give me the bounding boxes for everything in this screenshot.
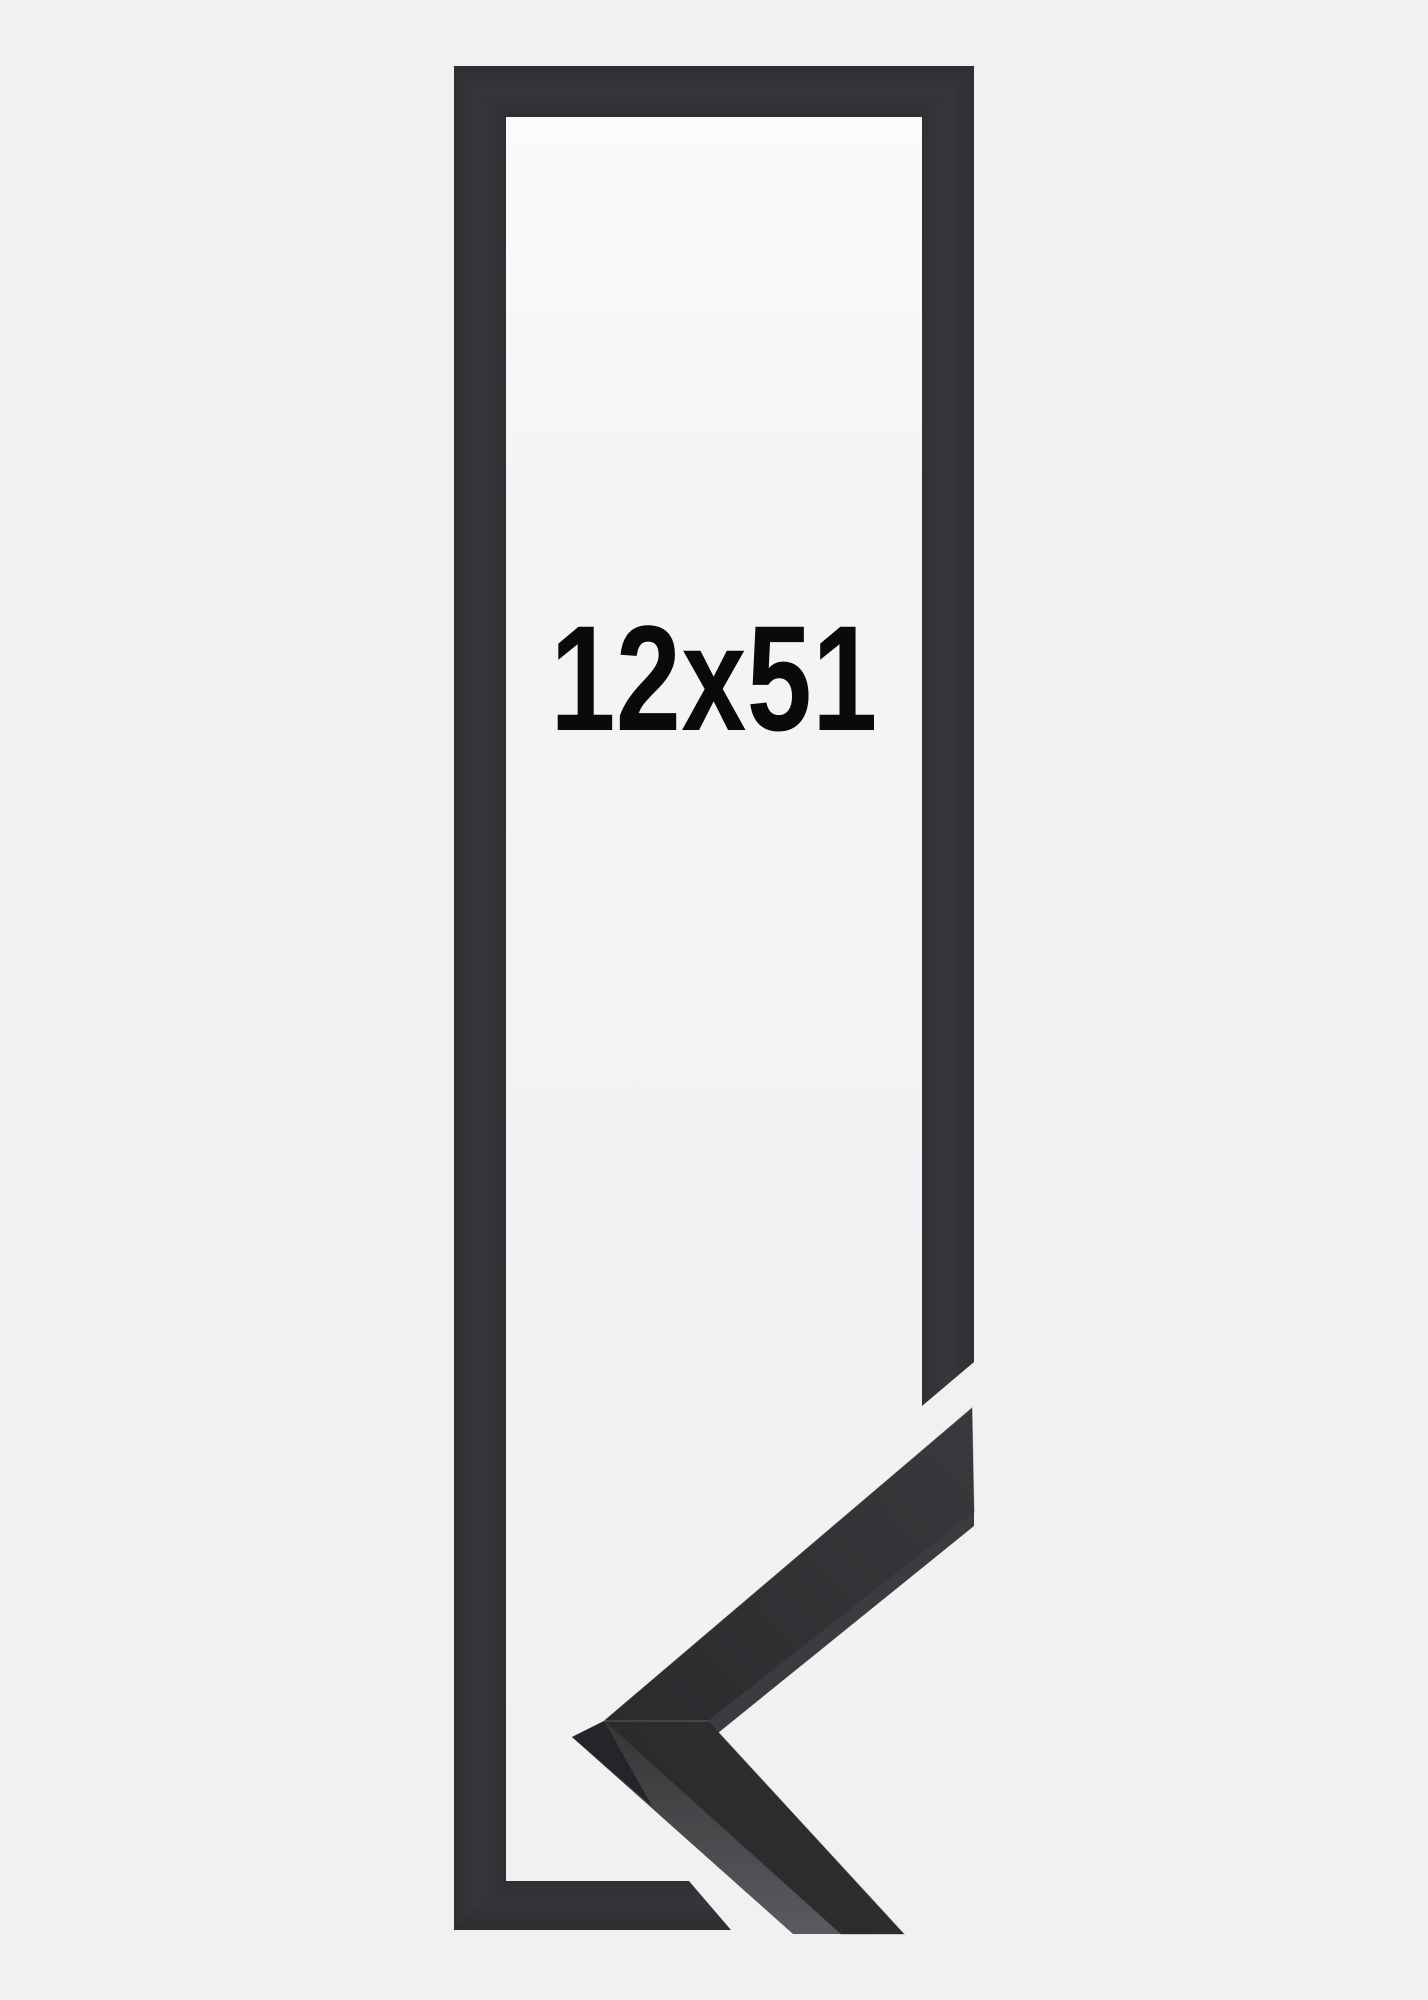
product-photo: 12x51 [0,0,1428,2000]
frame-left-rail [454,66,506,1930]
size-label: 12x51 [504,603,924,753]
picture-frame-illustration [0,0,1428,2000]
size-label-text: 12x51 [550,603,877,753]
frame-right-rail [922,66,974,1406]
frame-top-rail [454,66,974,117]
